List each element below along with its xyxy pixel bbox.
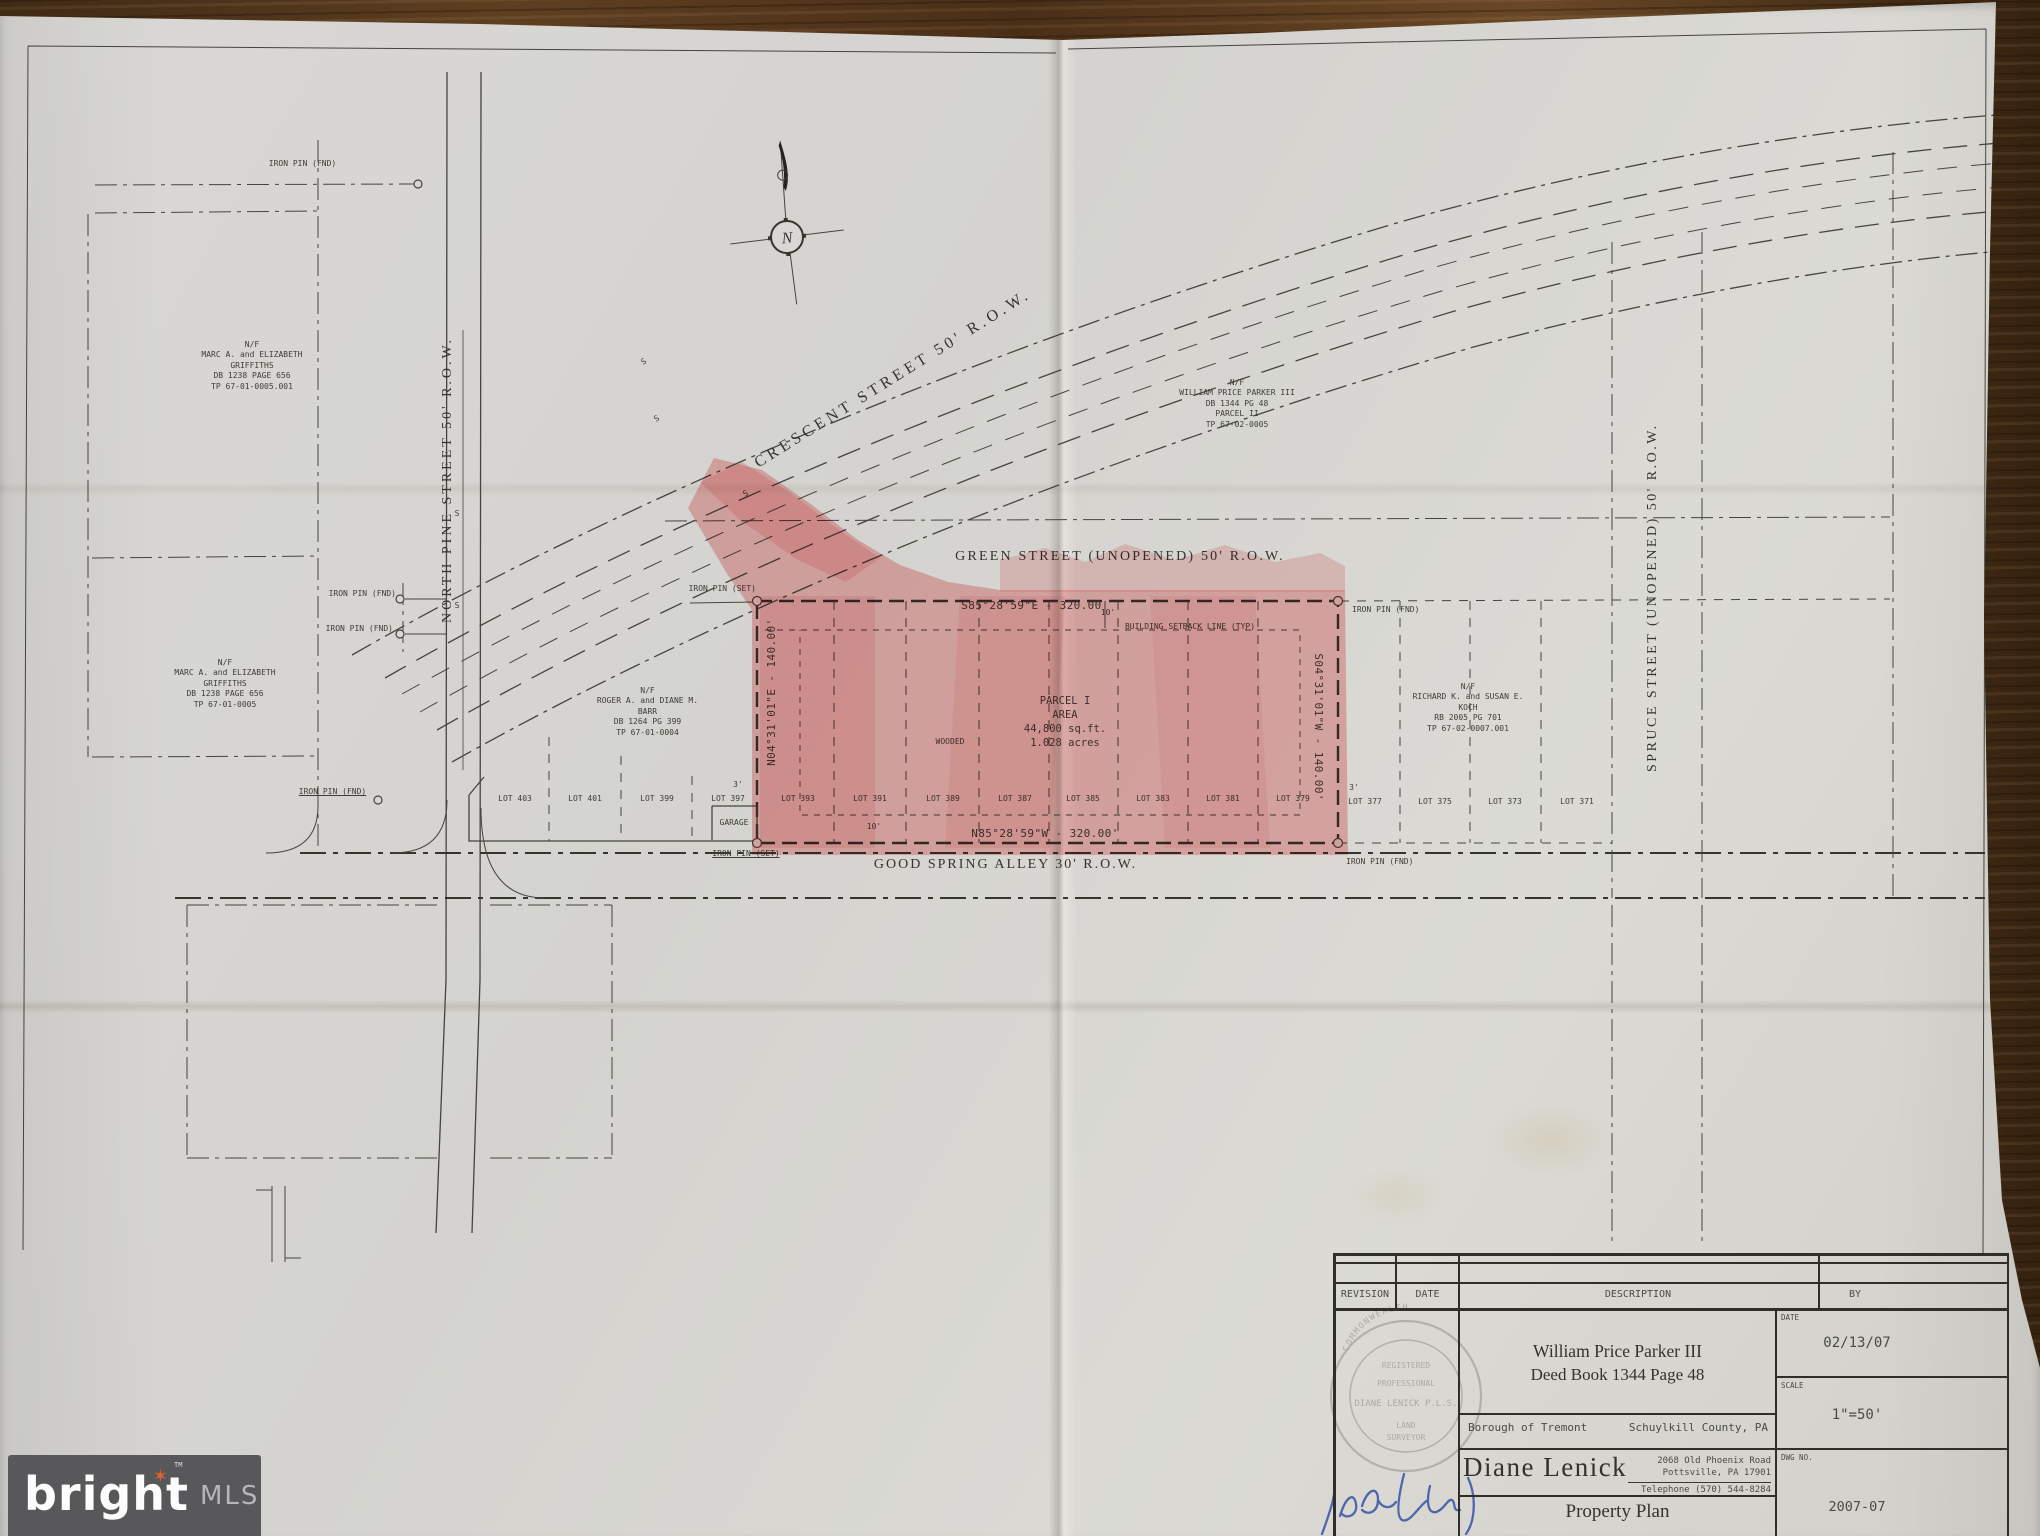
tb-line <box>1775 1376 2009 1378</box>
tb-scale-value: 1"=50' <box>1777 1407 1937 1423</box>
tb-line <box>1333 1282 2009 1284</box>
title-block: REVISION DATE DESCRIPTION BY William Pri… <box>1333 1253 2009 1536</box>
bright-mls-suffix: MLS <box>200 1481 259 1511</box>
tb-line <box>1333 1253 2009 1256</box>
tb-scale-label: SCALE <box>1781 1381 1804 1390</box>
tb-line <box>1395 1253 1397 1311</box>
tb-dwg-value: 2007-07 <box>1777 1499 1937 1515</box>
tb-surveyor-name: Diane Lenick <box>1463 1452 1627 1483</box>
tb-phone: Telephone (570) 544-8284 <box>1628 1482 1771 1495</box>
bright-mls-tm: TM <box>174 1461 182 1469</box>
tb-header-by: BY <box>1820 1289 1890 1300</box>
tb-line <box>1333 1262 2009 1264</box>
tb-county: Schuylkill County, PA <box>1588 1421 1768 1434</box>
bright-mls-star-icon: ✶ <box>154 1463 167 1487</box>
tb-line <box>2007 1253 2009 1536</box>
tb-header-revision: REVISION <box>1335 1289 1395 1300</box>
tb-address: 2068 Old Phoenix Road Pottsville, PA 179… <box>1633 1455 1771 1479</box>
tb-borough: Borough of Tremont <box>1468 1421 1587 1434</box>
tb-date-label: DATE <box>1781 1313 1799 1322</box>
tb-line <box>1333 1308 2009 1311</box>
photo-of-survey-plan: { "labels": { "iron_pin_fnd": "IRON PIN … <box>0 0 2040 1536</box>
tb-line <box>1458 1495 1775 1497</box>
tb-client-deed: Deed Book 1344 Page 48 <box>1460 1365 1775 1385</box>
tb-plan-title: Property Plan <box>1460 1501 1775 1523</box>
survey-plan-sheet: N COMMONWEALTH REGISTERED PROFESSIONAL D… <box>0 0 2040 1536</box>
tb-line <box>1458 1448 2009 1450</box>
tb-line <box>1818 1253 1820 1311</box>
tb-line <box>1458 1413 1775 1415</box>
tb-dwg-label: DWG NO. <box>1781 1453 1813 1462</box>
bright-mls-watermark: bright ✶ TM MLS <box>8 1455 261 1536</box>
tb-date-value: 02/13/07 <box>1777 1335 1937 1351</box>
tb-client-name: William Price Parker III <box>1460 1341 1775 1362</box>
tb-header-description: DESCRIPTION <box>1460 1289 1816 1300</box>
tb-header-date: DATE <box>1397 1289 1458 1300</box>
